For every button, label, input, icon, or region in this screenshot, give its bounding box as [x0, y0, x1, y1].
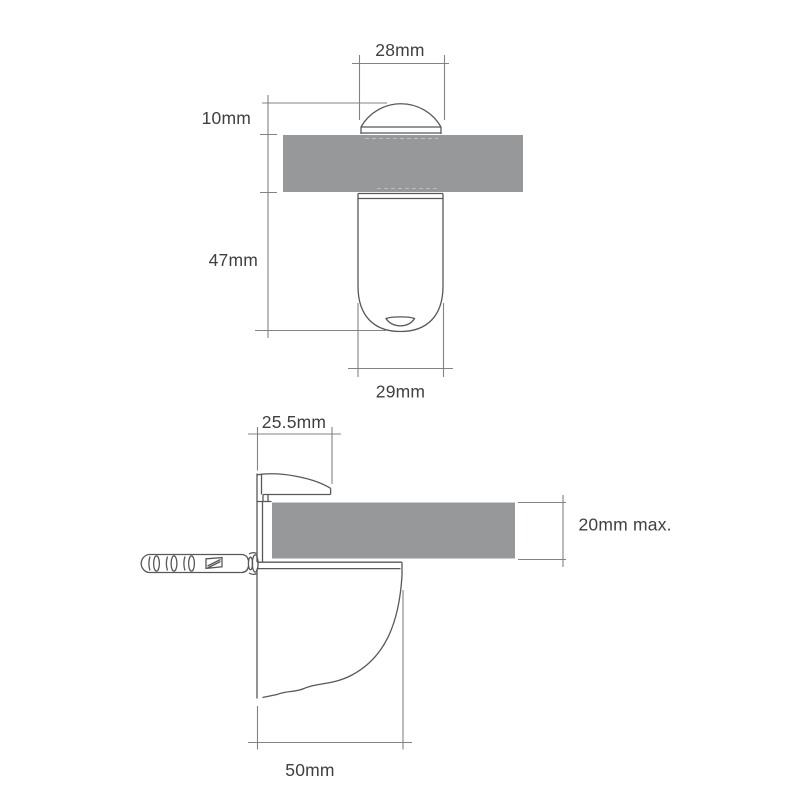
screw-head [206, 558, 222, 569]
plug-slot-line [184, 557, 185, 571]
dim-lines-top-width [352, 55, 449, 120]
shelf-panel-side [272, 503, 515, 559]
adjuster-slot [386, 317, 415, 326]
wall-plug-anchor [141, 553, 258, 575]
dim-lines-left-column [255, 95, 387, 338]
front-view-diagram: 28mm 10mm 47mm 29mm [202, 40, 523, 402]
dim-label-bracket-depth: 50mm [285, 760, 334, 780]
dim-label-stem-length: 47mm [209, 250, 258, 270]
plug-slot [154, 556, 160, 571]
stem-neck [358, 194, 443, 199]
plug-slot [171, 556, 177, 571]
dome-cap [361, 104, 441, 127]
dim-label-cap-height: 10mm [202, 108, 251, 128]
dim-clamp-depth: 25.5mm [248, 412, 341, 484]
dim-label-clamp-depth: 25.5mm [262, 412, 326, 432]
plug-slot [189, 556, 195, 571]
dome-cap-base [361, 127, 441, 134]
wall-post [257, 502, 263, 563]
top-clamp [257, 474, 331, 502]
stem-body [358, 199, 443, 332]
dim-top-width: 28mm [352, 40, 449, 120]
dim-label-stem-width: 29mm [376, 382, 425, 402]
dim-stem-width: 29mm [348, 303, 453, 402]
dim-lines-stem-width [348, 303, 453, 377]
bracket-curve [263, 570, 403, 698]
plug-slot-line [166, 557, 167, 571]
plug-slot-line [149, 557, 150, 571]
dim-shelf-thickness: 20mm max. [518, 495, 672, 567]
technical-drawing: 28mm 10mm 47mm 29mm [0, 0, 800, 800]
dim-bracket-depth: 50mm [248, 590, 412, 780]
dim-label-top-width: 28mm [375, 40, 424, 60]
shelf-panel-front [283, 135, 523, 192]
support-plate [257, 562, 402, 569]
drawing-canvas: 28mm 10mm 47mm 29mm [0, 0, 800, 800]
dim-label-shelf-thickness: 20mm max. [579, 515, 672, 535]
side-view-diagram: 25.5mm 20mm max. 50mm [141, 412, 672, 780]
dim-lines-bracket-depth [248, 590, 412, 750]
dim-lines-shelf-thickness [518, 495, 566, 567]
